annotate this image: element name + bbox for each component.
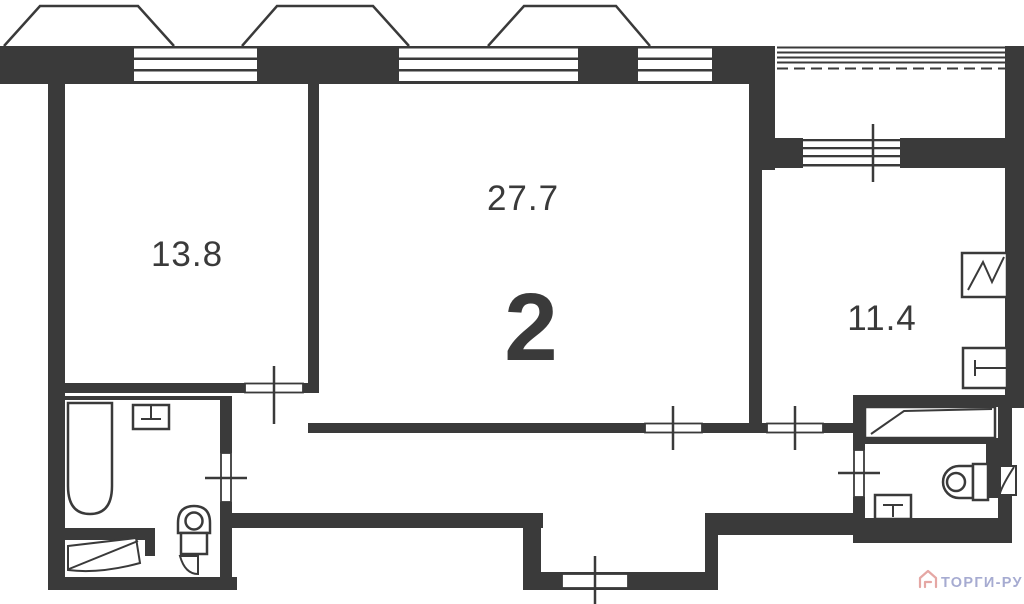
plan-number-label: 2 — [504, 274, 557, 381]
bathtub-icon — [865, 407, 995, 438]
vent-niche-icon — [1000, 466, 1016, 495]
window-line — [134, 58, 257, 61]
window-glass — [399, 46, 578, 84]
window-line — [399, 81, 578, 84]
window-glass — [803, 139, 900, 168]
kitchen-area-label: 11.4 — [847, 299, 917, 338]
window-line — [399, 46, 578, 49]
window-line — [803, 155, 900, 157]
window-glass — [134, 46, 257, 84]
floor-plan: 13.8 27.7 11.4 2 ТОРГИ-РУ — [0, 0, 1024, 604]
window-line — [134, 46, 257, 49]
bay-outlines — [4, 6, 650, 46]
floor-plan-page: 13.8 27.7 11.4 2 ТОРГИ-РУ — [0, 0, 1024, 604]
window-line — [399, 58, 578, 61]
window-line — [134, 81, 257, 84]
window-line — [638, 58, 712, 61]
window-glass — [638, 46, 712, 84]
window-line — [638, 46, 712, 49]
window-line — [134, 69, 257, 72]
toilet-tank-icon — [973, 464, 988, 500]
window-center — [399, 46, 578, 84]
toilet-tank-icon — [181, 533, 207, 554]
balcony-window — [803, 139, 900, 168]
bathtub-icon — [68, 403, 112, 514]
window-line — [638, 69, 712, 72]
window-line — [803, 147, 900, 149]
window-line — [638, 81, 712, 84]
room-center-area-label: 27.7 — [487, 179, 559, 218]
room-left-area-label: 13.8 — [151, 235, 223, 274]
window-right-small — [638, 46, 712, 84]
window-line — [399, 69, 578, 72]
window-line — [803, 164, 900, 167]
window-line — [803, 139, 900, 141]
window-left — [134, 46, 257, 84]
watermark-brand: ТОРГИ-РУ — [941, 575, 1023, 591]
